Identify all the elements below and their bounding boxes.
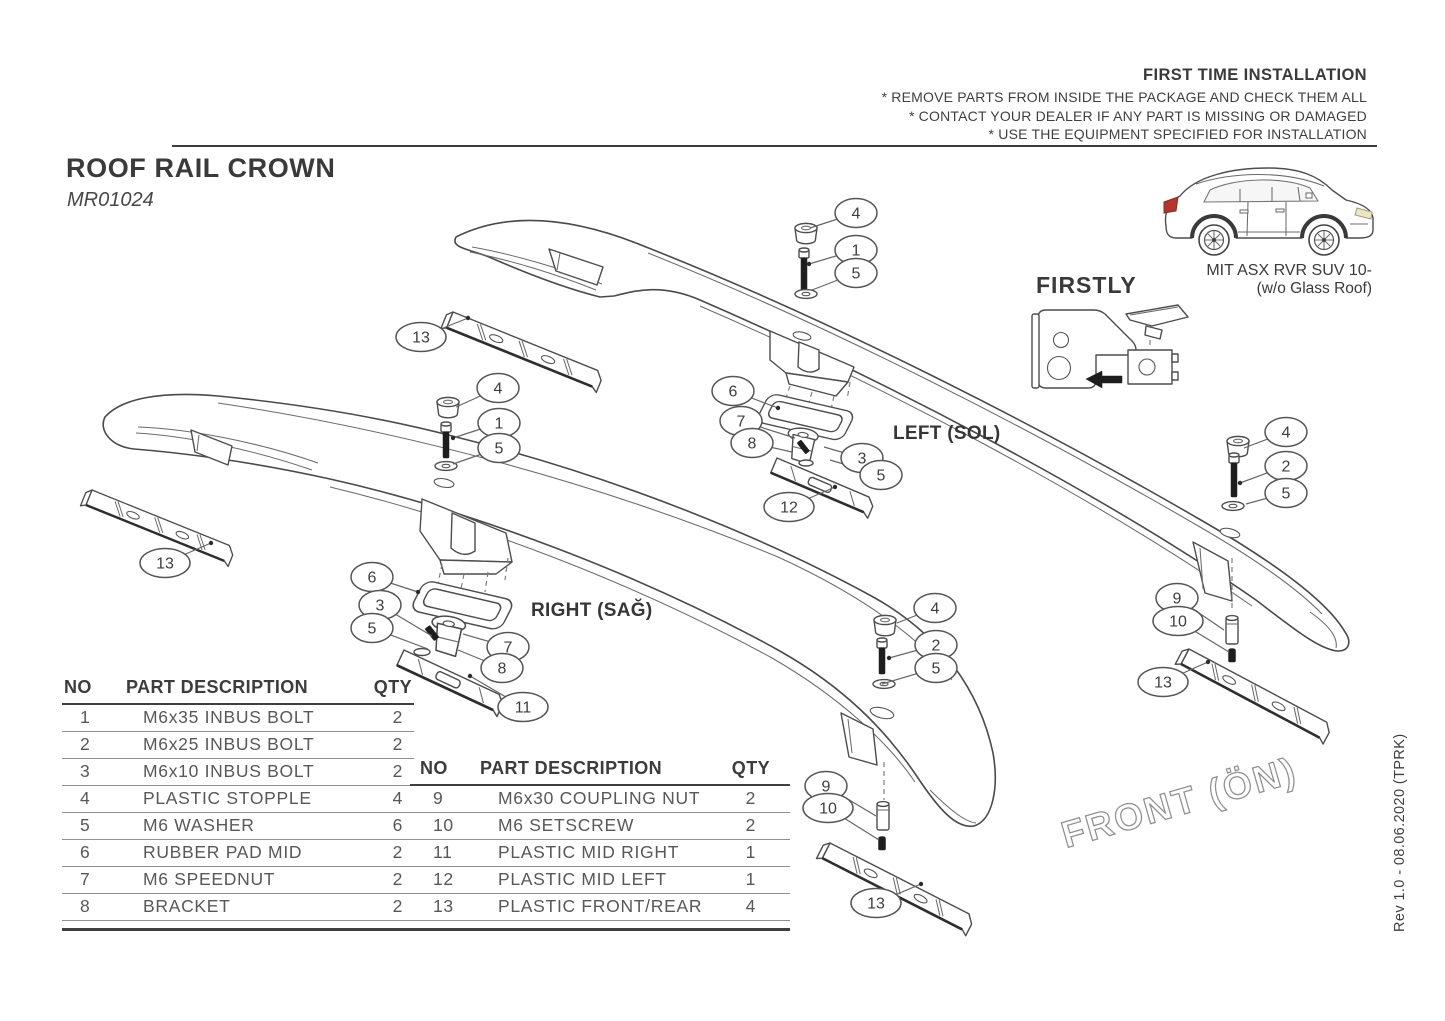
- m6x25-inbus-bolt: [1229, 453, 1239, 497]
- table-row: 4PLASTIC STOPPLE4: [62, 786, 414, 813]
- m6-washer-small-right: [414, 649, 430, 656]
- svg-text:3: 3: [376, 598, 385, 615]
- part-description: BRACKET: [126, 896, 358, 917]
- svg-text:1: 1: [495, 416, 504, 433]
- table-row: 12PLASTIC MID LEFT1: [410, 867, 790, 894]
- column-header: QTY: [358, 677, 414, 698]
- part-no: 12: [410, 869, 480, 890]
- table-row: 11PLASTIC MID RIGHT1: [410, 840, 790, 867]
- svg-text:7: 7: [737, 414, 746, 431]
- svg-text:13: 13: [1154, 675, 1172, 692]
- table-row: 5M6 WASHER6: [62, 813, 414, 840]
- column-header: QTY: [732, 758, 790, 779]
- part-qty: 6: [358, 815, 414, 836]
- table-row: 13PLASTIC FRONT/REAR4: [410, 894, 790, 921]
- m6-washer: [795, 290, 817, 299]
- part-qty: 4: [734, 896, 790, 917]
- part-qty: 1: [734, 842, 790, 863]
- table-row: 6RUBBER PAD MID2: [62, 840, 414, 867]
- left-rail-label: LEFT (SOL): [893, 423, 1000, 444]
- plastic-stopple: [874, 615, 896, 635]
- svg-text:4: 4: [852, 206, 861, 223]
- part-description: PLASTIC MID RIGHT: [480, 842, 734, 863]
- part-description: RUBBER PAD MID: [126, 842, 358, 863]
- part-qty: 2: [358, 842, 414, 863]
- callout-10: 10: [1153, 607, 1203, 636]
- leader-dot: [776, 406, 780, 410]
- svg-text:13: 13: [412, 330, 430, 347]
- callout-8: 8: [481, 654, 523, 683]
- callout-10: 10: [803, 794, 853, 823]
- parts-table-1: NOPART DESCRIPTIONQTY1M6x35 INBUS BOLT22…: [62, 676, 414, 931]
- plastic-front-rear: [440, 310, 604, 392]
- parts-table-2: NOPART DESCRIPTIONQTY9M6x30 COUPLING NUT…: [410, 757, 790, 931]
- table-row: 2M6x25 INBUS BOLT2: [62, 732, 414, 759]
- page: FIRST TIME INSTALLATION * REMOVE PARTS F…: [0, 0, 1445, 1021]
- m6-washer-small-left: [799, 460, 813, 466]
- table-row: 10M6 SETSCREW2: [410, 813, 790, 840]
- svg-text:4: 4: [494, 381, 503, 398]
- callout-13: 13: [851, 889, 901, 918]
- part-description: M6 SPEEDNUT: [126, 869, 358, 890]
- table-header-row: NOPART DESCRIPTIONQTY: [410, 757, 790, 786]
- leader-dot: [1238, 481, 1242, 485]
- callout-8: 8: [731, 429, 773, 458]
- svg-text:5: 5: [852, 266, 861, 283]
- callout-4: 4: [835, 199, 877, 228]
- part-qty: 2: [734, 788, 790, 809]
- table-row: 7M6 SPEEDNUT2: [62, 867, 414, 894]
- svg-text:12: 12: [780, 500, 798, 517]
- svg-text:5: 5: [495, 441, 504, 458]
- m6x30-coupling-nut: [1226, 616, 1238, 644]
- leader-dot: [451, 436, 455, 440]
- svg-text:2: 2: [1282, 459, 1291, 476]
- svg-text:4: 4: [931, 601, 940, 618]
- leader-dot: [468, 674, 472, 678]
- plastic-stopple: [437, 397, 459, 417]
- svg-text:6: 6: [368, 570, 377, 587]
- part-no: 3: [62, 761, 126, 782]
- callout-11: 11: [498, 693, 548, 722]
- callout-2: 2: [1265, 452, 1307, 481]
- svg-text:5: 5: [368, 621, 377, 638]
- column-header: PART DESCRIPTION: [480, 758, 732, 779]
- callout-12: 12: [764, 493, 814, 522]
- table-row: 8BRACKET2: [62, 894, 414, 921]
- leader-dot: [919, 882, 923, 886]
- table-row: 1M6x35 INBUS BOLT2: [62, 705, 414, 732]
- part-qty: 2: [358, 869, 414, 890]
- m6x35-inbus-bolt: [799, 248, 809, 292]
- leader-dot: [1206, 660, 1210, 664]
- part-no: 2: [62, 734, 126, 755]
- right-rail-label: RIGHT (SAĞ): [531, 599, 653, 621]
- revision-note: Rev 1.0 - 08.06.2020 (TPRK): [1392, 733, 1408, 932]
- m6x30-coupling-nut: [877, 802, 889, 830]
- svg-text:5: 5: [1282, 486, 1291, 503]
- leader-dot: [833, 485, 837, 489]
- leader-dot: [887, 656, 891, 660]
- part-qty: 2: [358, 734, 414, 755]
- leader-dot: [807, 262, 811, 266]
- part-description: M6 WASHER: [126, 815, 358, 836]
- part-no: 11: [410, 842, 480, 863]
- part-no: 4: [62, 788, 126, 809]
- part-qty: 4: [358, 788, 414, 809]
- leader-dot: [466, 316, 470, 320]
- svg-text:2: 2: [932, 638, 941, 655]
- callout-5: 5: [860, 461, 902, 490]
- svg-text:6: 6: [729, 384, 738, 401]
- callout-5: 5: [1265, 479, 1307, 508]
- part-no: 8: [62, 896, 126, 917]
- column-header: PART DESCRIPTION: [126, 677, 358, 698]
- part-description: M6x30 COUPLING NUT: [480, 788, 734, 809]
- m6-washer: [435, 462, 457, 471]
- svg-text:10: 10: [819, 801, 837, 818]
- m6-washer: [1222, 502, 1244, 511]
- callout-4: 4: [1265, 418, 1307, 447]
- callout-13: 13: [140, 549, 190, 578]
- part-no: 10: [410, 815, 480, 836]
- part-no: 13: [410, 896, 480, 917]
- front-watermark: FRONT (ÖN): [1057, 749, 1302, 855]
- column-header: NO: [410, 758, 480, 779]
- callout-5: 5: [915, 654, 957, 683]
- m6-setscrew: [879, 837, 886, 851]
- callout-4: 4: [914, 594, 956, 623]
- svg-text:8: 8: [748, 436, 757, 453]
- callout-13: 13: [396, 323, 446, 352]
- part-qty: 2: [734, 815, 790, 836]
- part-no: 6: [62, 842, 126, 863]
- part-description: M6x25 INBUS BOLT: [126, 734, 358, 755]
- part-description: PLASTIC MID LEFT: [480, 869, 734, 890]
- part-description: PLASTIC FRONT/REAR: [480, 896, 734, 917]
- leader-dot: [209, 541, 213, 545]
- svg-text:1: 1: [852, 243, 861, 260]
- svg-text:13: 13: [867, 896, 885, 913]
- table-row: 3M6x10 INBUS BOLT2: [62, 759, 414, 786]
- leader-dot: [416, 590, 420, 594]
- part-no: 5: [62, 815, 126, 836]
- part-description: M6x10 INBUS BOLT: [126, 761, 358, 782]
- part-no: 1: [62, 707, 126, 728]
- part-no: 9: [410, 788, 480, 809]
- part-no: 7: [62, 869, 126, 890]
- column-header: NO: [62, 677, 126, 698]
- plastic-front-rear: [816, 841, 975, 936]
- callout-13: 13: [1138, 668, 1188, 697]
- part-qty: 2: [358, 896, 414, 917]
- part-description: PLASTIC STOPPLE: [126, 788, 358, 809]
- svg-text:9: 9: [1173, 591, 1182, 608]
- svg-text:4: 4: [1282, 425, 1291, 442]
- callout-6: 6: [712, 377, 754, 406]
- svg-text:10: 10: [1169, 614, 1187, 631]
- part-qty: 1: [734, 869, 790, 890]
- callout-5: 5: [351, 614, 393, 643]
- svg-text:11: 11: [515, 700, 532, 717]
- callout-5: 5: [835, 259, 877, 288]
- part-qty: 2: [358, 707, 414, 728]
- part-qty: 2: [358, 761, 414, 782]
- svg-text:5: 5: [932, 661, 941, 678]
- svg-text:5: 5: [877, 468, 886, 485]
- table-header-row: NOPART DESCRIPTIONQTY: [62, 676, 414, 705]
- callout-6: 6: [351, 563, 393, 592]
- part-description: M6x35 INBUS BOLT: [126, 707, 358, 728]
- table-row: 9M6x30 COUPLING NUT2: [410, 786, 790, 813]
- callout-4: 4: [477, 374, 519, 403]
- svg-text:8: 8: [498, 661, 507, 678]
- callout-5: 5: [478, 434, 520, 463]
- m6-setscrew: [1229, 649, 1236, 663]
- part-description: M6 SETSCREW: [480, 815, 734, 836]
- svg-text:13: 13: [156, 556, 174, 573]
- plastic-front-rear: [1175, 647, 1333, 744]
